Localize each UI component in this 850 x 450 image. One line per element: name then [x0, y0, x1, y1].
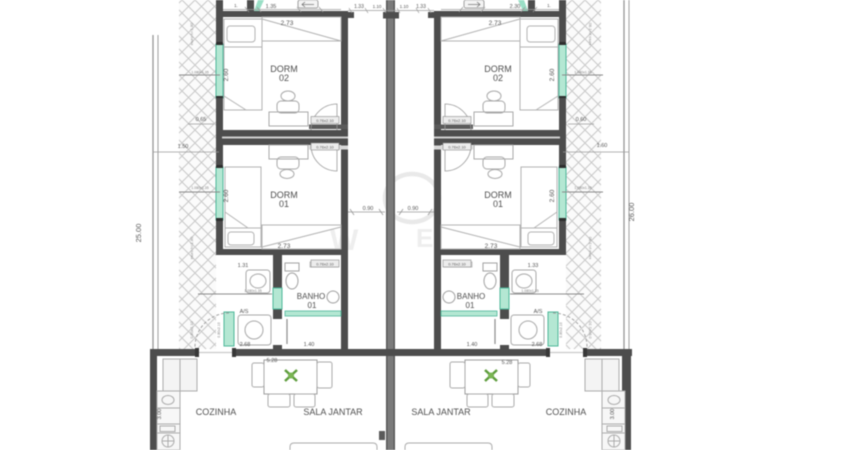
svg-text:1.: 1. [234, 3, 238, 8]
svg-text:2.68: 2.68 [532, 342, 543, 348]
svg-text:0.60: 0.60 [576, 117, 587, 123]
svg-text:SALA JANTAR: SALA JANTAR [411, 407, 471, 417]
svg-text:COZINHA: COZINHA [196, 407, 237, 417]
svg-text:1.080x1.35: 1.080x1.35 [191, 186, 208, 190]
svg-text:1.10: 1.10 [373, 4, 382, 9]
svg-text:1.080x1.35: 1.080x1.35 [244, 289, 261, 293]
svg-text:E: E [416, 223, 433, 253]
svg-text:0.76x2.10: 0.76x2.10 [448, 118, 466, 123]
svg-text:1.: 1. [547, 3, 551, 8]
svg-text:25.00: 25.00 [134, 224, 143, 243]
svg-text:1.40: 1.40 [467, 342, 478, 348]
svg-text:0.90: 0.90 [408, 206, 419, 212]
svg-text:0.80x2.10: 0.80x2.10 [189, 320, 194, 338]
svg-text:1.50: 1.50 [178, 144, 189, 150]
svg-text:0.76x2.10: 0.76x2.10 [448, 262, 466, 267]
svg-text:A/S: A/S [534, 309, 543, 315]
svg-text:0.76x2.10: 0.76x2.10 [448, 145, 466, 150]
svg-text:3.00: 3.00 [610, 409, 616, 420]
svg-text:1.080x1.35: 1.080x1.35 [574, 71, 591, 75]
svg-text:1.080x1.35: 1.080x1.35 [521, 289, 538, 293]
svg-text:5.28: 5.28 [502, 360, 513, 366]
svg-text:BANHO: BANHO [457, 292, 485, 301]
svg-text:COZINHA: COZINHA [546, 407, 587, 417]
svg-text:0.76x2.10: 0.76x2.10 [316, 262, 334, 267]
svg-text:02: 02 [279, 73, 289, 83]
svg-text:2.73: 2.73 [489, 20, 502, 27]
svg-text:0.76x2.10: 0.76x2.10 [316, 145, 334, 150]
svg-text:2.73: 2.73 [281, 20, 294, 27]
svg-text:BANHO: BANHO [297, 292, 325, 301]
svg-text:1.35: 1.35 [266, 4, 277, 10]
svg-text:A/S: A/S [240, 309, 249, 315]
svg-text:0.90: 0.90 [363, 206, 374, 212]
svg-text:0.65: 0.65 [196, 117, 207, 123]
svg-text:SALA JANTAR: SALA JANTAR [303, 407, 363, 417]
svg-text:1.33: 1.33 [354, 4, 364, 10]
svg-text:2.60: 2.60 [549, 68, 556, 81]
svg-text:1.33: 1.33 [416, 4, 426, 10]
svg-text:muro h=1.80: muro h=1.80 [189, 236, 194, 259]
svg-text:3.00: 3.00 [157, 409, 163, 420]
svg-text:2.60: 2.60 [223, 189, 230, 202]
svg-text:01: 01 [279, 199, 289, 209]
svg-text:2.60: 2.60 [223, 68, 230, 81]
svg-text:1.60: 1.60 [597, 143, 608, 149]
svg-text:muro h=1.80: muro h=1.80 [189, 22, 194, 45]
svg-text:02: 02 [493, 73, 503, 83]
svg-text:0.80x2.10: 0.80x2.10 [217, 322, 221, 337]
svg-text:1.40: 1.40 [304, 342, 315, 348]
svg-text:01: 01 [308, 301, 317, 310]
svg-text:2.73: 2.73 [278, 243, 291, 250]
svg-text:5.28: 5.28 [267, 358, 278, 364]
svg-text:0.80x2.10: 0.80x2.10 [559, 322, 563, 337]
svg-text:2.68: 2.68 [240, 342, 251, 348]
svg-text:01: 01 [466, 301, 475, 310]
svg-text:1.33: 1.33 [528, 263, 539, 269]
svg-text:2.30: 2.30 [510, 4, 521, 10]
svg-text:1.10: 1.10 [400, 4, 409, 9]
svg-text:1.080x1.35: 1.080x1.35 [191, 71, 208, 75]
svg-text:2.73: 2.73 [485, 243, 498, 250]
svg-text:0.76x2.10: 0.76x2.10 [316, 118, 334, 123]
svg-text:1.080x1.35: 1.080x1.35 [574, 186, 591, 190]
svg-text:01: 01 [493, 199, 503, 209]
svg-text:2.60: 2.60 [549, 189, 556, 202]
svg-text:26.00: 26.00 [627, 203, 636, 222]
svg-text:1.31: 1.31 [238, 263, 249, 269]
